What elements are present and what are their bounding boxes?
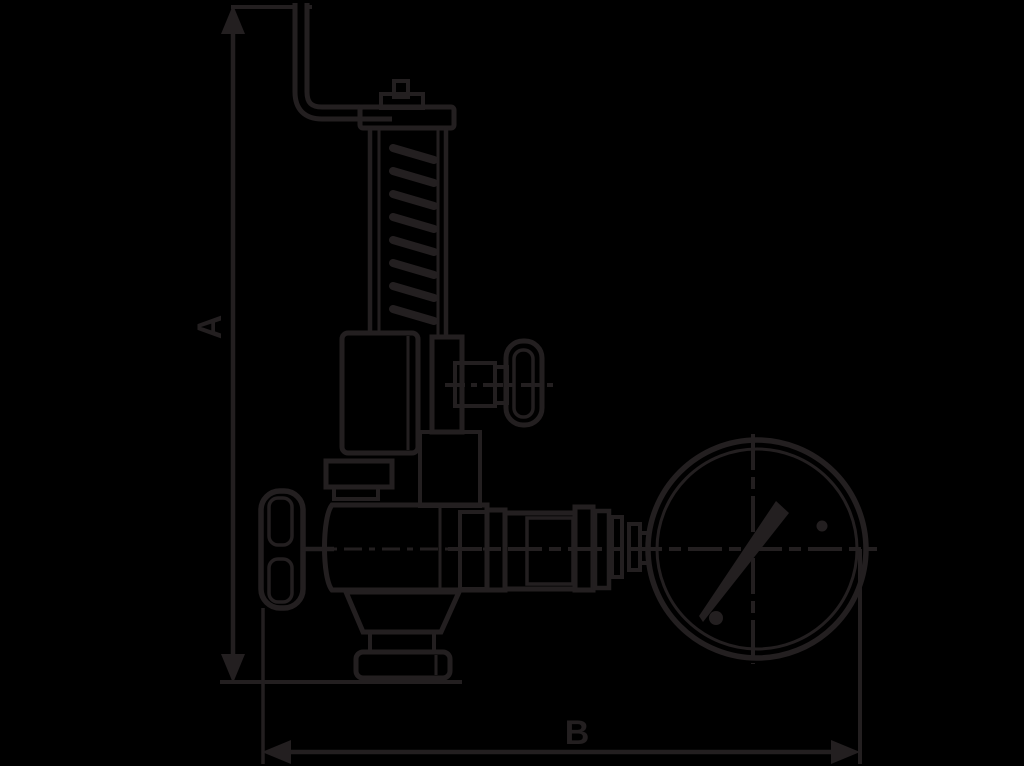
test-valve-plinth [420,432,480,506]
valve-body [325,505,488,652]
spring-coils [393,148,434,321]
bonnet-flange [326,461,392,487]
bonnet [326,333,418,499]
gauge-dot-lower [709,611,723,625]
side-test-valve [420,337,556,506]
dimension-a-label: A [191,315,229,340]
inlet-handwheel-spoke-top [269,498,292,545]
lever-rod-bore [301,3,392,113]
body-outlet-cone [346,592,459,632]
arrow-right-icon [831,740,860,764]
inlet-handwheel-spoke-bottom [269,559,292,602]
arrow-up-icon [221,5,245,34]
lever-rod-outline [301,3,392,113]
drawing-canvas: A B [0,0,1024,766]
arrow-down-icon [221,654,245,683]
gauge-needle [699,501,789,622]
bonnet-gasket [334,487,378,499]
relief-valve-technical-drawing: A B [0,0,1024,766]
dimension-b-label: B [565,714,590,752]
pressure-gauge [448,434,877,664]
arrow-left-icon [262,740,291,764]
test-lever [301,3,392,113]
gauge-dot-upper [817,521,828,532]
outlet-flange [356,652,450,678]
